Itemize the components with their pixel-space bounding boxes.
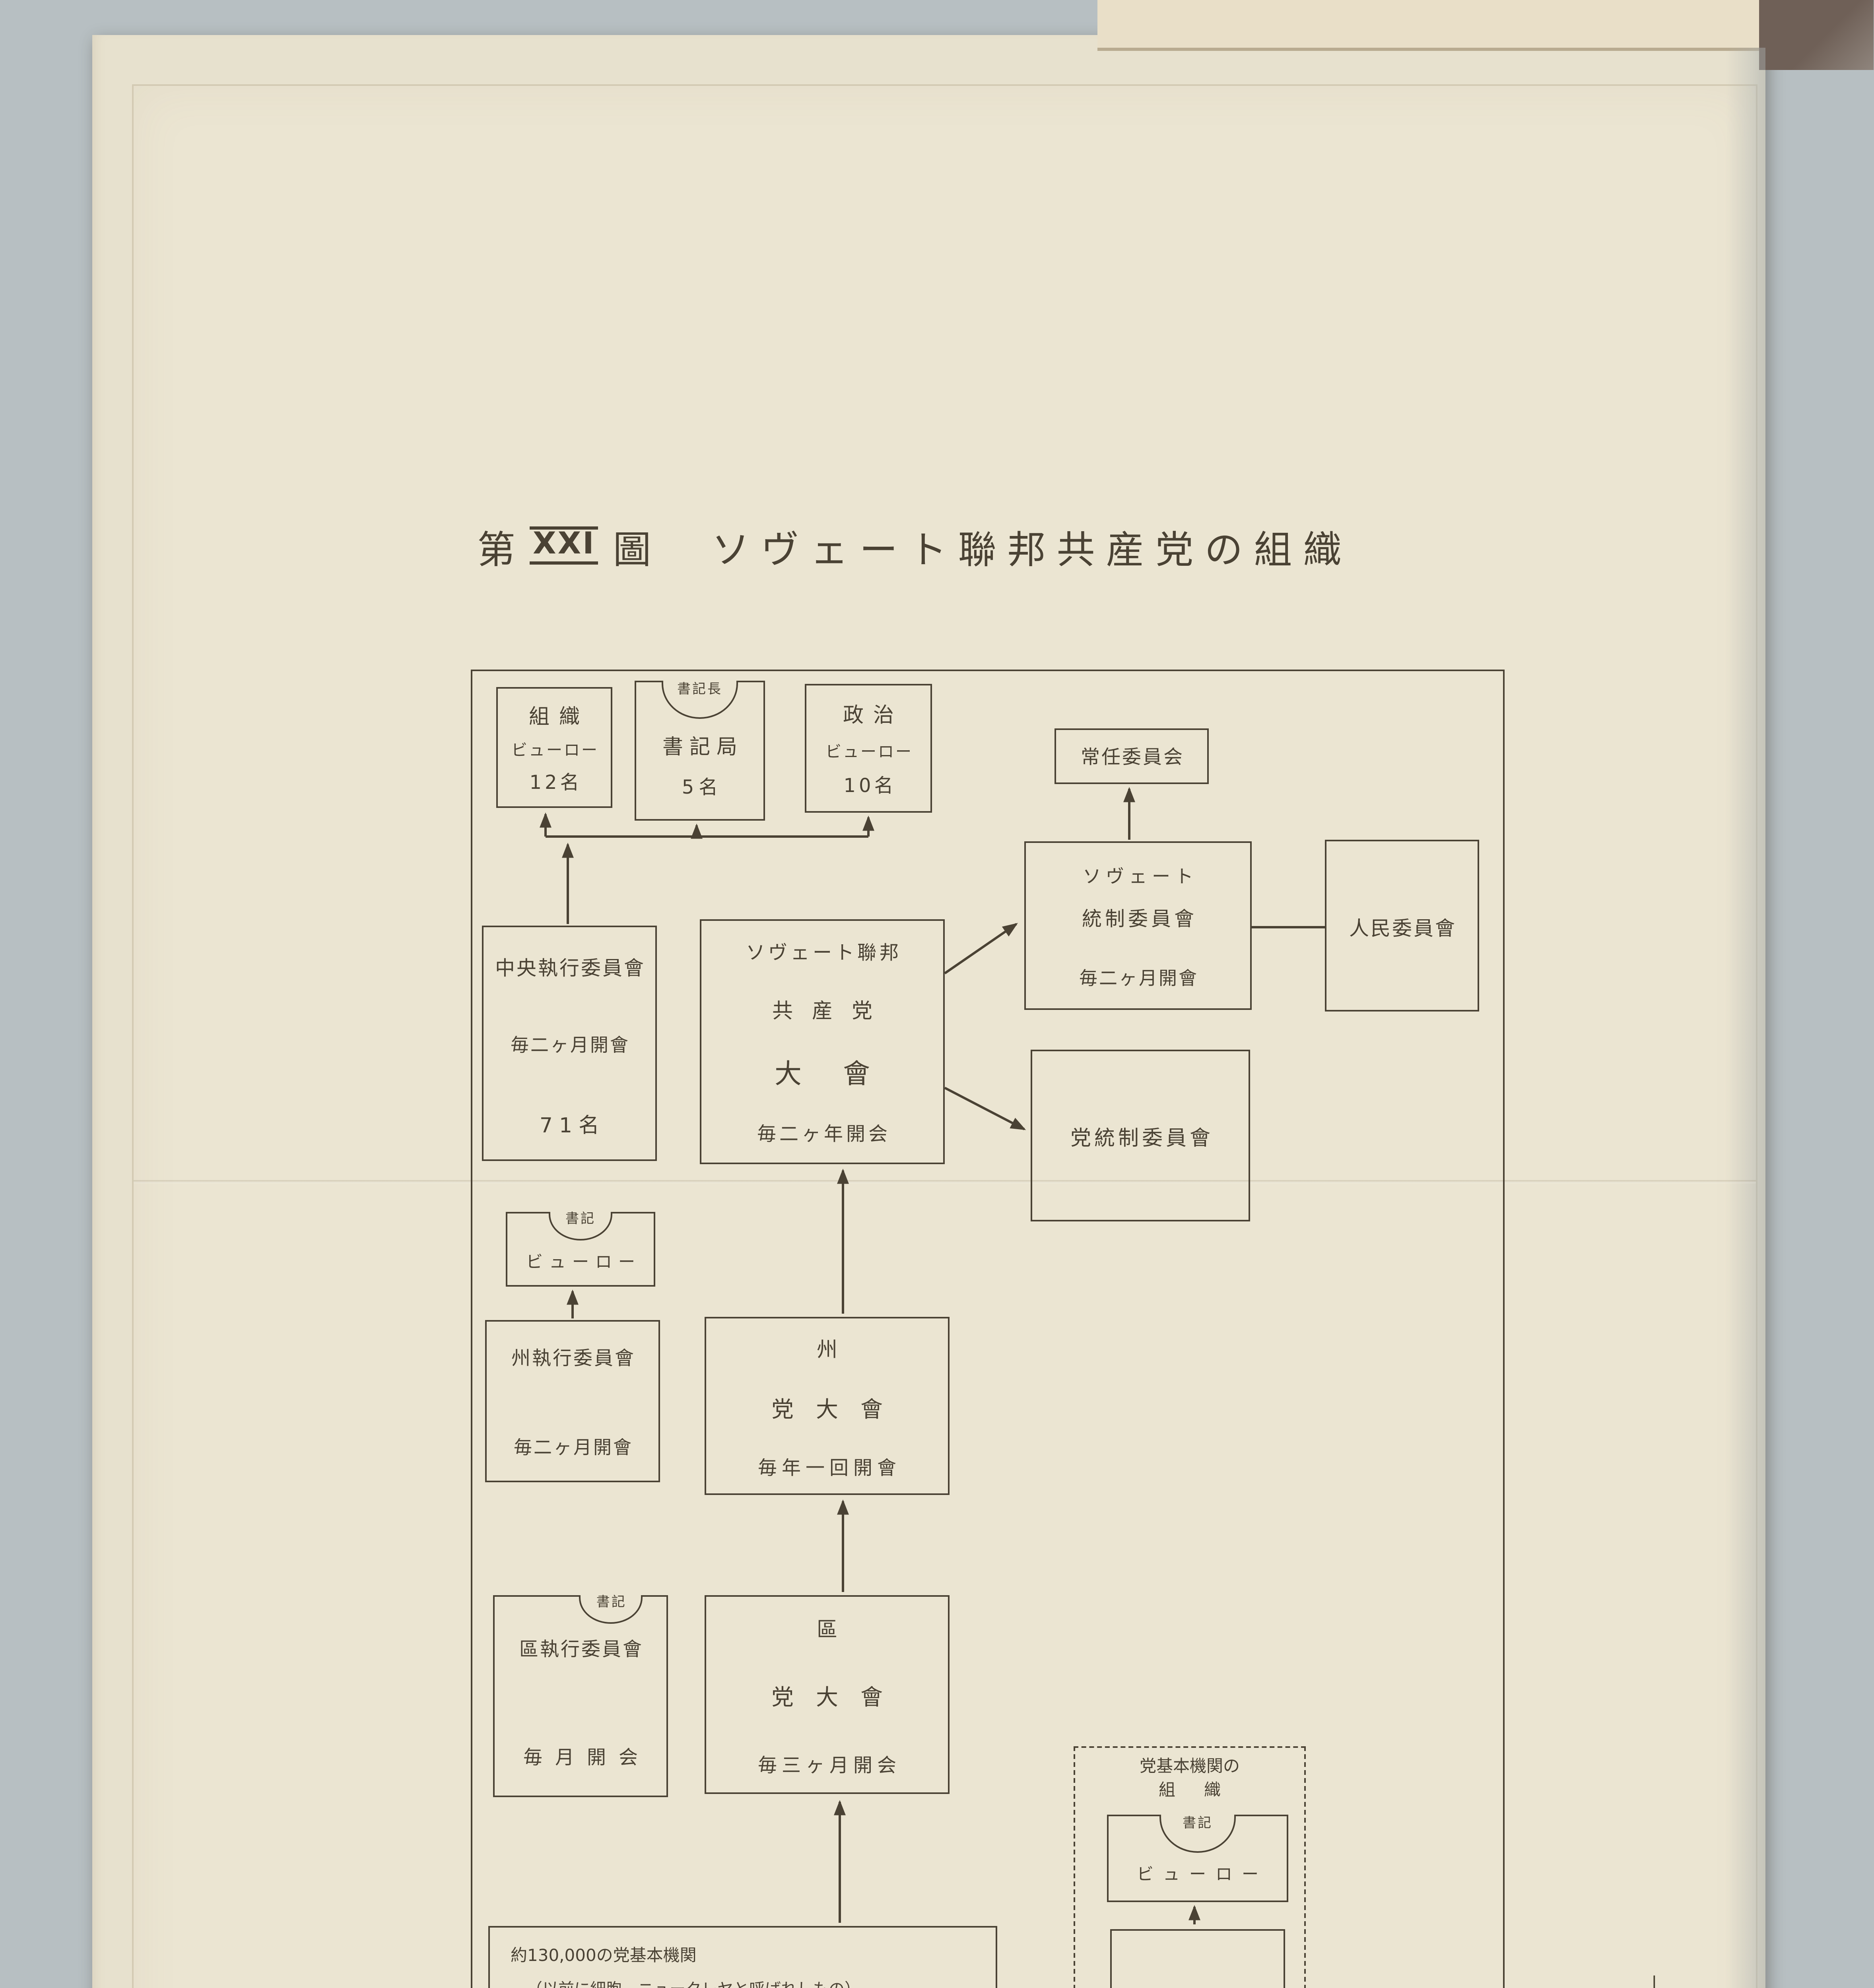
union-congress-line1: ソヴェート聯邦 <box>701 938 943 965</box>
node-district-executive-committee: 書記 區執行委員會 毎月開会 <box>493 1595 668 1797</box>
peoples-committee-title: 人民委員會 <box>1326 911 1478 941</box>
node-polit-bureau: 政治 ビューロー 10名 <box>805 684 932 813</box>
under-page-edge <box>1097 0 1765 51</box>
figure-title-main: ソヴェート聯邦共産党の組織 <box>712 518 1353 573</box>
secretariat-count: 5名 <box>636 773 763 800</box>
polit-bureau-title: 政治 <box>806 698 930 728</box>
figure-title-prefix: 第 <box>477 518 515 573</box>
figure-title: 第 XXI 圖 ソヴェート聯邦共産党の組織 <box>477 517 1353 574</box>
district-congress-schedule: 毎三ヶ月開会 <box>706 1751 948 1778</box>
node-soviet-control-committee: ソヴェート 統制委員會 毎二ヶ月開會 <box>1024 841 1252 1010</box>
district-exec-schedule: 毎月開会 <box>495 1743 666 1770</box>
figure-number-group: 第 XXI 圖 <box>477 518 651 573</box>
district-congress-line2: 党大會 <box>706 1681 948 1713</box>
union-congress-schedule: 毎二ヶ年開会 <box>701 1120 943 1147</box>
page-number: — 295 —— <box>1642 1974 1666 1988</box>
province-congress-line2: 党大會 <box>706 1392 948 1424</box>
node-secretariat: 書記長 書記局 5名 <box>635 681 765 821</box>
province-congress-schedule: 毎年一回開會 <box>706 1454 948 1481</box>
polit-bureau-count: 10名 <box>806 771 930 798</box>
node-party-members: 党員 <box>1110 1929 1285 1988</box>
basic-organ-group-header-line2: 組織 <box>1075 1780 1304 1804</box>
node-peoples-committee: 人民委員會 <box>1325 840 1479 1011</box>
central-exec-title: 中央執行委員會 <box>484 951 655 981</box>
district-exec-title: 區執行委員會 <box>495 1635 666 1662</box>
polit-bureau-subtitle: ビューロー <box>806 738 930 762</box>
node-district-party-congress: 區 党大會 毎三ヶ月開会 <box>705 1595 950 1794</box>
union-congress-line3: 大會 <box>701 1052 943 1091</box>
node-province-executive-committee: 州執行委員會 毎二ヶ月開會 <box>485 1320 660 1482</box>
basic-organ-group-header: 党基本機関の 組織 <box>1075 1756 1304 1804</box>
node-basic-organs-note: 約130,000の党基本機関 （以前に細胞、ニュークレヤと呼ばれしもの） 工場、… <box>488 1926 997 1988</box>
district-secretary-badge: 書記 <box>580 1595 643 1624</box>
page-right-edge <box>1726 48 1765 1988</box>
org-bureau-subtitle: ビューロー <box>498 737 611 761</box>
province-exec-schedule: 毎二ヶ月開會 <box>487 1435 658 1460</box>
basic-organs-note-line2: （以前に細胞、ニュークレヤと呼ばれしもの） <box>511 1974 986 1988</box>
province-secretary-badge-label: 書記 <box>565 1213 596 1228</box>
basic-organ-bureau-label: ビューロー <box>1109 1862 1287 1886</box>
district-secretary-badge-label: 書記 <box>596 1597 627 1611</box>
union-congress-line2: 共産党 <box>701 994 943 1024</box>
node-org-bureau: 組織 ビューロー 12名 <box>496 687 612 808</box>
node-party-control-committee: 党統制委員會 <box>1031 1050 1250 1221</box>
basic-organ-secretary-badge-label: 書記 <box>1183 1818 1213 1833</box>
node-standing-committee: 常任委員会 <box>1054 728 1209 784</box>
party-members-label: 党員 <box>1112 1983 1284 1988</box>
party-control-title: 党統制委員會 <box>1032 1120 1249 1151</box>
node-basic-organ-bureau: 書記 ビューロー <box>1107 1815 1288 1902</box>
photo-shadow-corner <box>1759 0 1874 70</box>
province-congress-line1: 州 <box>706 1333 948 1363</box>
basic-organ-secretary-badge: 書記 <box>1159 1815 1236 1853</box>
photo: 第 XXI 圖 ソヴェート聯邦共産党の組織 <box>0 0 1874 1988</box>
secretary-general-badge: 書記長 <box>662 681 738 719</box>
standing-committee-title: 常任委員会 <box>1056 743 1207 770</box>
secretariat-title: 書記局 <box>636 730 763 760</box>
soviet-control-schedule: 毎二ヶ月開會 <box>1026 965 1250 991</box>
node-central-executive-committee: 中央執行委員會 毎二ヶ月開會 71名 <box>482 926 657 1161</box>
province-secretary-bureau-label: ビューロー <box>507 1250 654 1274</box>
org-bureau-count: 12名 <box>498 768 611 795</box>
central-exec-schedule: 毎二ヶ月開會 <box>484 1032 655 1058</box>
central-exec-count: 71名 <box>484 1109 655 1139</box>
node-province-secretary-bureau: 書記 ビューロー <box>506 1212 655 1287</box>
org-bureau-title: 組織 <box>498 700 611 730</box>
basic-organs-note-line1: 約130,000の党基本機関 <box>511 1943 986 1967</box>
figure-number: XXI <box>530 526 599 565</box>
basic-organ-group-header-line1: 党基本機関の <box>1075 1756 1304 1780</box>
soviet-control-line1: ソヴェート <box>1026 864 1250 889</box>
node-province-party-congress: 州 党大會 毎年一回開會 <box>705 1317 950 1495</box>
node-union-party-congress: ソヴェート聯邦 共産党 大會 毎二ヶ年開会 <box>700 919 945 1164</box>
district-congress-line1: 區 <box>706 1613 948 1643</box>
secretary-general-badge-label: 書記長 <box>677 684 722 699</box>
soviet-control-line2: 統制委員會 <box>1026 902 1250 932</box>
basic-organ-group: 党基本機関の 組織 書記 ビューロー 党員 <box>1074 1746 1306 1988</box>
province-exec-title: 州執行委員會 <box>487 1344 658 1371</box>
figure-title-suffix: 圖 <box>613 518 651 573</box>
province-secretary-badge: 書記 <box>549 1212 612 1241</box>
